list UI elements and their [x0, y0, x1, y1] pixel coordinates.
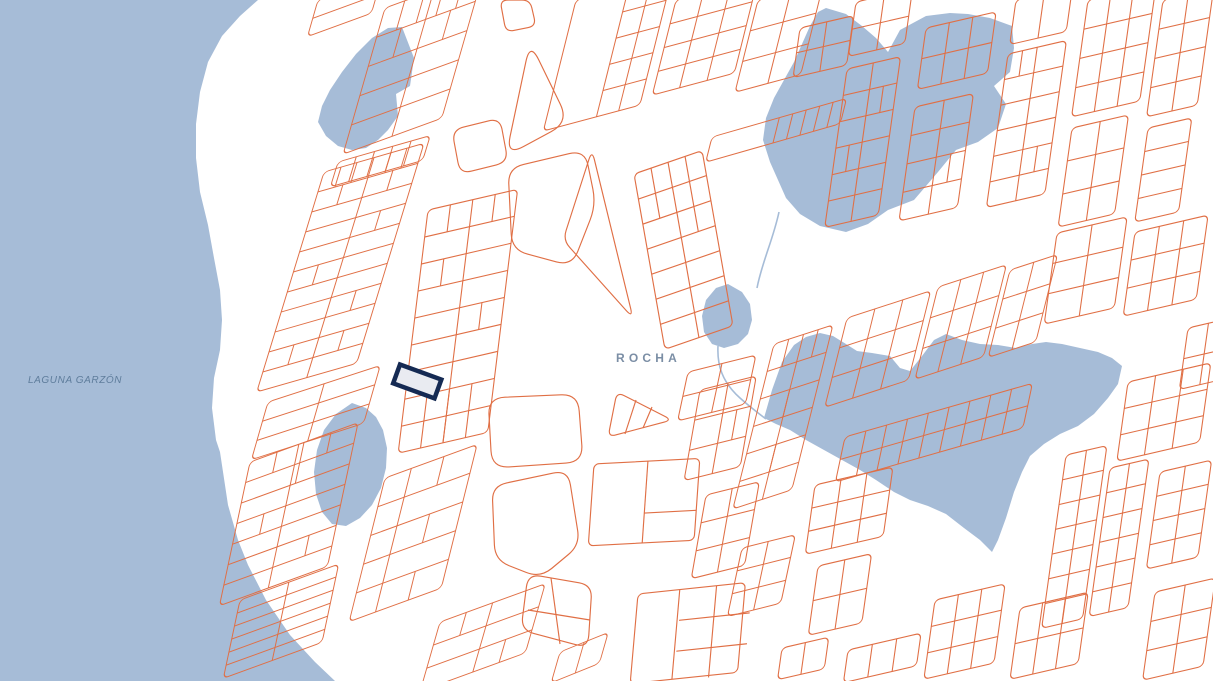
svg-text:ROCHA: ROCHA — [616, 351, 681, 365]
svg-text:LAGUNA GARZÓN: LAGUNA GARZÓN — [28, 373, 122, 386]
